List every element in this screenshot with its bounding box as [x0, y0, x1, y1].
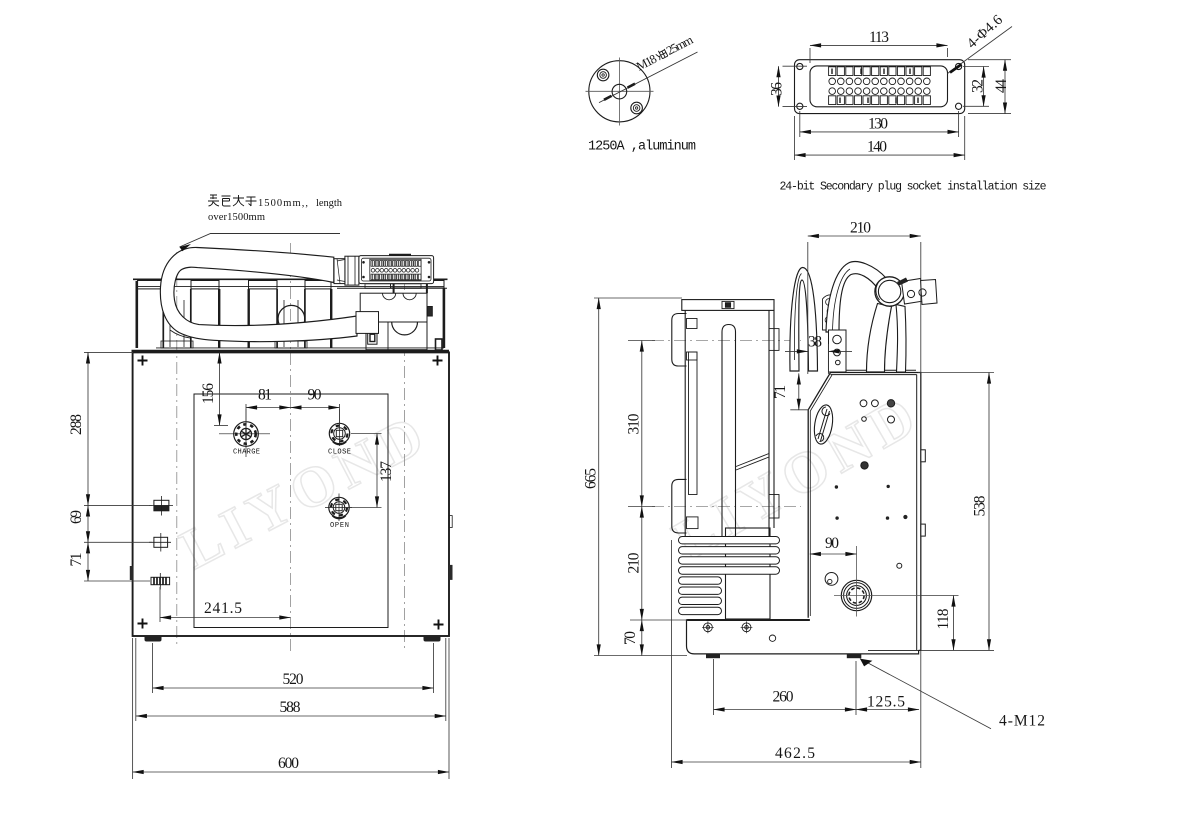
svg-text:71: 71	[68, 553, 85, 567]
svg-text:288: 288	[68, 414, 85, 435]
svg-text:CHARGE: CHARGE	[233, 449, 260, 457]
svg-text:600: 600	[278, 755, 299, 772]
svg-text:over1500mm: over1500mm	[208, 212, 265, 223]
svg-text:CLOSE: CLOSE	[328, 449, 351, 457]
svg-text:137: 137	[378, 461, 395, 482]
svg-text:140: 140	[867, 139, 887, 156]
svg-text:71: 71	[772, 385, 789, 399]
svg-text:length: length	[316, 198, 343, 209]
svg-text:665: 665	[583, 468, 600, 489]
svg-text:538: 538	[972, 495, 989, 516]
svg-text:210: 210	[850, 220, 871, 237]
svg-text:1250A ,aluminum: 1250A ,aluminum	[588, 140, 696, 155]
svg-text:310: 310	[626, 413, 643, 434]
svg-text:210: 210	[626, 552, 643, 573]
svg-text:118: 118	[935, 608, 952, 629]
svg-text:36: 36	[769, 82, 786, 96]
svg-text:588: 588	[280, 699, 301, 716]
svg-text:4-M12: 4-M12	[999, 713, 1045, 730]
svg-text:113: 113	[869, 29, 889, 46]
svg-text:38: 38	[808, 334, 822, 351]
svg-text:241.5: 241.5	[204, 600, 242, 617]
svg-text:90: 90	[308, 387, 322, 404]
svg-text:70: 70	[622, 631, 639, 645]
svg-text:32: 32	[970, 79, 987, 93]
svg-text:81: 81	[258, 387, 272, 404]
svg-text:520: 520	[283, 671, 304, 688]
svg-text:44: 44	[993, 79, 1010, 93]
svg-text:156: 156	[200, 383, 217, 404]
svg-text:462.5: 462.5	[775, 745, 815, 762]
svg-text:130: 130	[868, 116, 888, 133]
svg-text:1500mm,,: 1500mm,,	[258, 198, 308, 209]
svg-text:260: 260	[773, 689, 794, 706]
svg-text:90: 90	[825, 535, 839, 552]
svg-text:24-bit Secondary plug socket i: 24-bit Secondary plug socket installatio…	[780, 181, 1047, 194]
svg-text:OPEN: OPEN	[330, 522, 349, 530]
svg-text:125.5: 125.5	[867, 694, 905, 711]
svg-text:69: 69	[68, 510, 85, 524]
